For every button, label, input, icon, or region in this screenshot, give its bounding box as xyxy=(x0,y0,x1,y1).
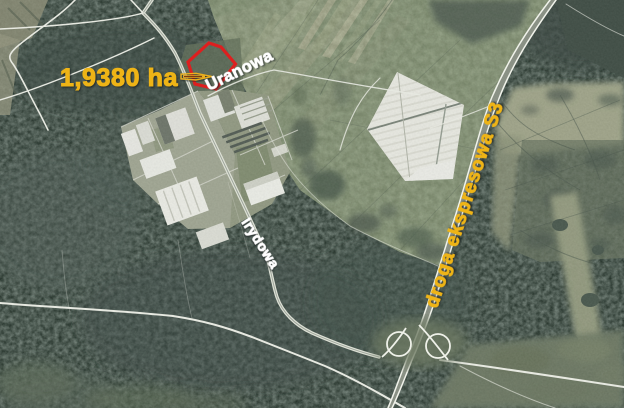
svg-text:1,9380 ha: 1,9380 ha xyxy=(60,64,178,92)
